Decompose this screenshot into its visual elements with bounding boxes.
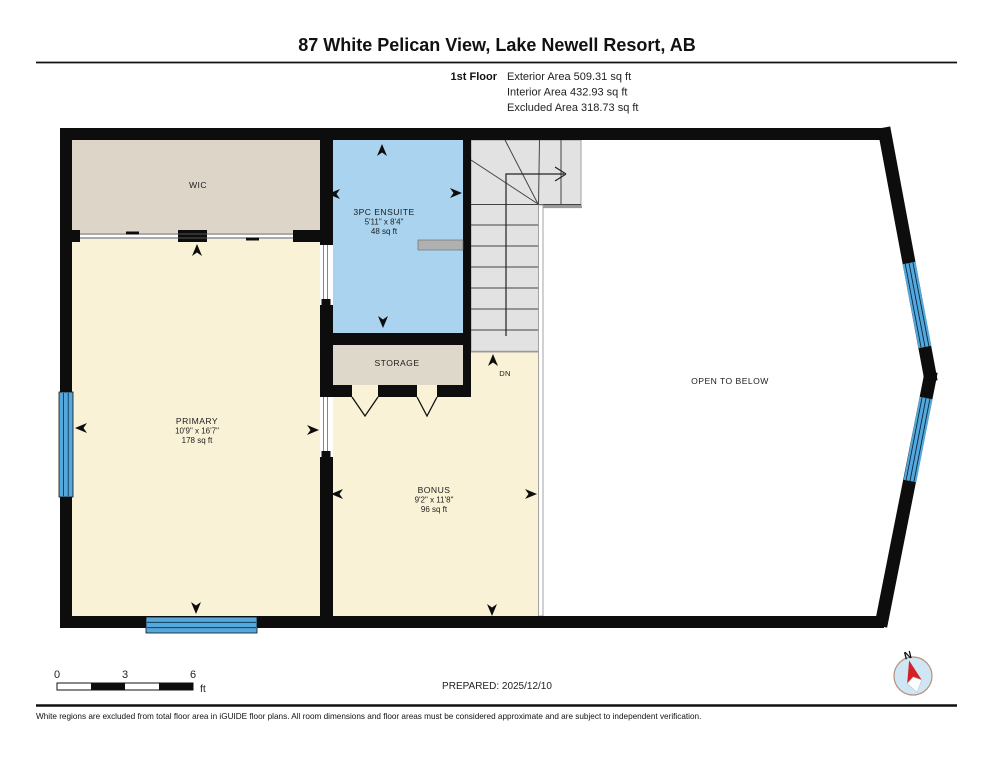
wall-wic-seg2 [178,230,207,242]
label-bonus-dims: 9'2" x 11'8" [415,496,454,505]
staircase [471,140,582,352]
window-left [59,392,73,497]
wall-top [60,128,886,140]
label-ensuite: 3PC ENSUITE [353,207,414,217]
compass-n-label: N [903,649,913,662]
wall-mid-lower [320,457,333,616]
pocket-door-bonus [324,397,328,457]
railing [539,205,544,616]
scale-bar-seg-black-2 [159,683,193,690]
wall-elbow [924,371,937,384]
wall-ensuite-right [463,128,471,397]
floorplan-canvas: 87 White Pelican View, Lake Newell Resor… [0,0,993,768]
wall-storage-seg1 [320,385,352,397]
wall-ensuite-storage [320,333,471,345]
wall-mid-center [320,305,333,397]
wall-mid-upper [320,128,333,245]
label-storage: STORAGE [374,358,419,368]
compass: N [894,648,932,695]
interior-area: Interior Area 432.93 sq ft [507,87,627,99]
label-bonus-area: 96 sq ft [421,505,448,514]
ensuite-counter [418,240,463,250]
wall-wic-seg3 [293,230,333,242]
floor-label: 1st Floor [451,71,498,83]
prepared-date: PREPARED: 2025/12/10 [442,681,552,692]
label-ensuite-area: 48 sq ft [371,227,398,236]
floorplan-page: 87 White Pelican View, Lake Newell Resor… [0,0,993,768]
label-open-to-below: OPEN TO BELOW [691,376,769,386]
excluded-area: Excluded Area 318.73 sq ft [507,102,638,114]
page-title: 87 White Pelican View, Lake Newell Resor… [298,35,695,55]
scale-tick-3: 3 [122,669,128,681]
wall-storage-seg3 [437,385,471,397]
wall-wic-seg1 [72,230,80,242]
door-panel-1 [126,232,139,235]
label-primary-dims: 10'9" x 16'7" [175,427,219,436]
exterior-area: Exterior Area 509.31 sq ft [507,71,631,83]
pocket-door-ensuite [324,245,328,305]
door-panel-2 [246,238,259,241]
scale-bar-seg-black-1 [91,683,125,690]
label-primary: PRIMARY [176,416,218,426]
door-stop-bonus [322,451,331,457]
label-ensuite-dims: 5'11" x 8'4" [365,218,404,227]
label-primary-area: 178 sq ft [182,436,213,445]
label-bonus: BONUS [418,485,451,495]
scale-tick-0: 0 [54,669,60,681]
door-stop-ensuite [322,299,331,305]
scale-tick-6: 6 [190,669,196,681]
disclaimer-text: White regions are excluded from total fl… [36,712,701,721]
scale-bar: 0 3 6 ft [54,669,206,695]
label-wic: WIC [189,180,207,190]
room-ensuite [333,140,463,333]
window-bottom [146,617,257,633]
room-bonus [333,345,538,616]
wall-storage-seg2 [378,385,417,397]
label-dn: DN [499,369,511,378]
wall-left [60,128,72,628]
scale-unit: ft [200,683,206,695]
